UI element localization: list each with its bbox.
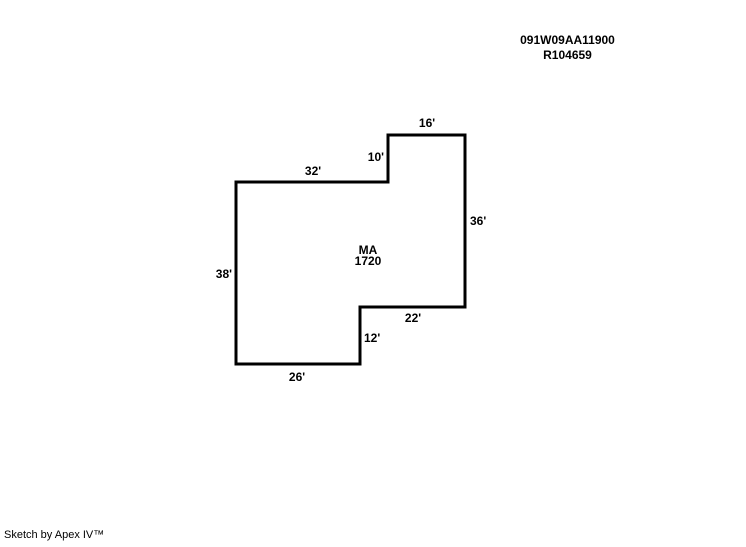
dim-label-16ft: 16': [419, 116, 435, 130]
area-size-label: 1720: [355, 254, 382, 268]
floorplan-sketch: 16' 10' 32' 36' 38' 22' 12' 26' MA 1720: [0, 0, 746, 547]
sketch-page: 091W09AA11900 R104659 16' 10' 32' 36' 38…: [0, 0, 746, 547]
dim-label-26ft: 26': [289, 370, 305, 384]
dim-label-38ft: 38': [216, 267, 232, 281]
apex-credit: Sketch by Apex IV™: [4, 529, 104, 541]
dim-label-32ft: 32': [305, 164, 321, 178]
dim-label-10ft: 10': [368, 150, 384, 164]
dim-label-12ft: 12': [364, 331, 380, 345]
dim-label-22ft: 22': [405, 311, 421, 325]
dim-label-36ft: 36': [470, 214, 486, 228]
floorplan-outline: [236, 135, 465, 364]
